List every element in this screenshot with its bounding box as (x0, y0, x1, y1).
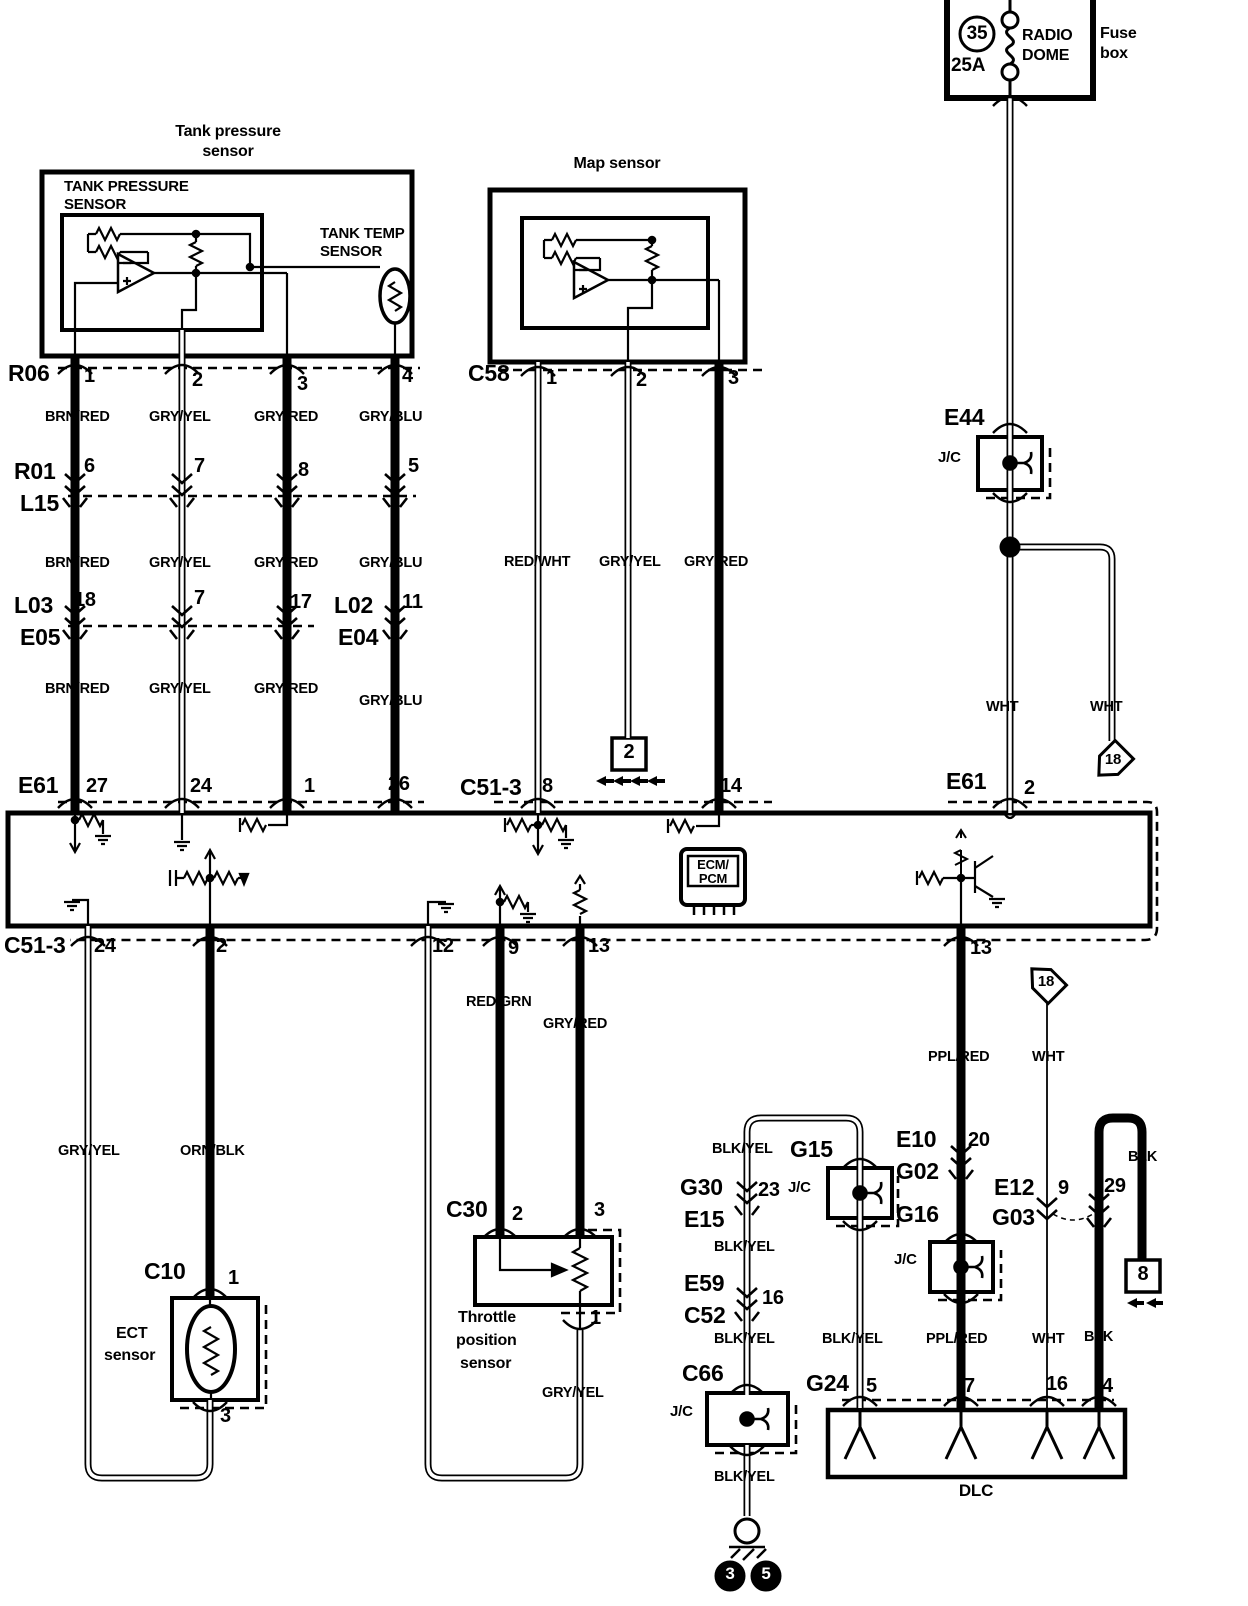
wire-ornblk: ORN/BLK (180, 1144, 245, 1159)
c51-3-pin-8: 8 (542, 776, 553, 796)
conn-c51-3-top: C51-3 (460, 776, 522, 799)
c51-3b-pin-2: 2 (216, 936, 227, 956)
conn-e12: E12 (994, 1176, 1034, 1199)
ground-ref-5: 5 (761, 1565, 770, 1582)
wire-gryred-3: GRY/RED (254, 682, 318, 697)
wire-blkyel-d: BLK/YEL (714, 1470, 775, 1485)
wire-pplred-2: PPL/RED (926, 1332, 987, 1347)
wire-pplred-1: PPL/RED (928, 1050, 989, 1065)
c51-3b-pin-13-right: 13 (970, 938, 992, 958)
ecm-label-line1: ECM/ (697, 858, 729, 871)
ect-label-line2: sensor (104, 1348, 155, 1364)
wire-gryyel-1: GRY/YEL (149, 410, 211, 425)
ect-zigzag (204, 1298, 218, 1400)
ecm-pcm-box (8, 813, 1150, 926)
tank-title-line1: Tank pressure (175, 124, 281, 140)
e44-jc-label: J/C (938, 450, 961, 465)
wiring-diagram: 3525ARADIODOMEFuseboxTank pressuresensor… (0, 0, 1248, 1606)
l02-pin-11: 11 (402, 592, 423, 612)
dlc-label: DLC (959, 1482, 993, 1499)
c30-pin-2: 2 (512, 1204, 523, 1224)
offpage-ref-18-a: 18 (1105, 752, 1121, 767)
conn-e05: E05 (20, 626, 60, 649)
fuse-box-caption-line1: Fuse (1100, 26, 1137, 42)
r01-pin-5: 5 (408, 456, 419, 476)
wire-gryblu-2: GRY/BLU (359, 556, 422, 571)
conn-e44: E44 (944, 406, 984, 429)
l03-pin-7: 7 (194, 588, 205, 608)
tank-temp-label-line2: SENSOR (320, 244, 382, 259)
wire-brnred-3: BRN/RED (45, 682, 110, 697)
r01-pin-8: 8 (298, 460, 309, 480)
conn-e61-left: E61 (18, 774, 58, 797)
ecm-internal-top (70, 813, 1016, 854)
dlc-pin-forks (845, 1412, 1114, 1459)
conn-e59: E59 (684, 1272, 724, 1295)
conn-g16: G16 (896, 1203, 939, 1226)
wire-gryblu-1: GRY/BLU (359, 410, 422, 425)
e61-pin-1: 1 (304, 776, 315, 796)
wire-gryyel-2: GRY/YEL (149, 556, 211, 571)
offpage-ref-2: 2 (624, 742, 635, 762)
wire-redgrn: RED/GRN (466, 995, 531, 1010)
wht-splice-dot (1000, 537, 1021, 558)
e61-pin-27: 27 (86, 776, 108, 796)
wire-blk-right: BLK (1128, 1150, 1157, 1165)
conn-g03: G03 (992, 1206, 1035, 1229)
e61-pin-26: 26 (388, 774, 410, 794)
r01-pin-6: 6 (84, 456, 95, 476)
ect-label-line1: ECT (116, 1326, 147, 1342)
conn-l15: L15 (20, 492, 59, 515)
tps-label-line1: Throttle (458, 1310, 516, 1326)
c10-pin-1: 1 (228, 1268, 239, 1288)
c58-pin-2: 2 (636, 370, 647, 390)
g15-jc-label: J/C (788, 1180, 811, 1195)
e12-pin-9: 9 (1058, 1178, 1069, 1198)
wire-wht-left: WHT (986, 700, 1018, 715)
tank-title-line2: sensor (202, 144, 253, 160)
l03-pin-18: 18 (74, 590, 96, 610)
wire-wht-right: WHT (1090, 700, 1122, 715)
wire-gryyel-map: GRY/YEL (599, 555, 661, 570)
dlc-box (828, 1410, 1125, 1477)
wire-blkyel-g24: BLK/YEL (822, 1332, 883, 1347)
c10-pin-3: 3 (220, 1406, 231, 1426)
map-title: Map sensor (574, 156, 661, 172)
ecm-label-line2: PCM (699, 872, 727, 885)
c30-pin-3: 3 (594, 1200, 605, 1220)
c51-3-pin-14: 14 (720, 776, 742, 796)
conn-l03: L03 (14, 594, 53, 617)
e61-pin-24: 24 (190, 776, 212, 796)
tps-label-line3: sensor (460, 1356, 511, 1372)
ground-ref-3: 3 (725, 1565, 734, 1582)
c51-3b-pin-12: 12 (432, 936, 454, 956)
fuse-name-line1: RADIO (1022, 28, 1073, 44)
wire-wht-dlc-2: WHT (1032, 1332, 1064, 1347)
c66-jc-label: J/C (670, 1404, 693, 1419)
fuse-rating: 25A (951, 56, 985, 75)
g24-pin-16: 16 (1046, 1374, 1068, 1394)
wire-brnred-1: BRN/RED (45, 410, 110, 425)
e10-pin-20: 20 (968, 1130, 990, 1150)
r06-pin-4: 4 (402, 366, 413, 386)
wire-gry-yel-ect-loop-outer (88, 926, 210, 1478)
conn-c52: C52 (684, 1304, 726, 1327)
map-sensor-inner-box (522, 218, 708, 328)
tank-temp-label-line1: TANK TEMP (320, 226, 405, 241)
c58-pin-3: 3 (728, 368, 739, 388)
ect-dashed-offset (180, 1300, 266, 1408)
conn-r01: R01 (14, 460, 56, 483)
fuse-name-line2: DOME (1022, 48, 1069, 64)
g24-pin-7: 7 (964, 1376, 975, 1396)
tank-inner-label-line1: TANK PRESSURE (64, 179, 189, 194)
wire-gryblu-3: GRY/BLU (359, 694, 422, 709)
offpage-ref-8: 8 (1138, 1264, 1149, 1284)
c51-3b-pin-13: 13 (588, 936, 610, 956)
c66-jc-icon (741, 1408, 769, 1430)
conn-g02: G02 (896, 1160, 939, 1183)
wire-blkyel-a: BLK/YEL (712, 1142, 773, 1157)
e12-pin-29: 29 (1104, 1176, 1126, 1196)
conn-e04: E04 (338, 626, 378, 649)
r06-pin-1: 1 (84, 366, 95, 386)
l03-pin-17: 17 (290, 592, 312, 612)
wire-wht-dlc-1: WHT (1032, 1050, 1064, 1065)
r01-pin-7: 7 (194, 456, 205, 476)
wire-gryred-tps: GRY/RED (543, 1017, 607, 1032)
conn-c30: C30 (446, 1198, 488, 1221)
fuse-box-caption-line2: box (1100, 46, 1128, 62)
offpage-ref-18-b: 18 (1038, 974, 1054, 989)
tank-inner-label-line2: SENSOR (64, 197, 126, 212)
conn-e15: E15 (684, 1208, 724, 1231)
wire-brnred-2: BRN/RED (45, 556, 110, 571)
ect-sensor-box (172, 1298, 258, 1400)
fuse-number: 35 (967, 24, 988, 43)
conn-c51-3-bottom: C51-3 (4, 934, 66, 957)
g16-jc-label: J/C (894, 1252, 917, 1267)
c30-pin-1: 1 (590, 1308, 601, 1328)
c51-3b-pin-9: 9 (508, 938, 519, 958)
fuse-icon (1002, 0, 1018, 98)
r06-pin-2: 2 (192, 370, 203, 390)
conn-g24: G24 (806, 1372, 849, 1395)
conn-e61-right: E61 (946, 770, 986, 793)
wire-blk-left: BLK (1084, 1330, 1113, 1345)
e61-pin-2: 2 (1024, 778, 1035, 798)
wire-blkyel-c: BLK/YEL (714, 1332, 775, 1347)
conn-c66: C66 (682, 1362, 724, 1385)
tps-label-line2: position (456, 1333, 517, 1349)
ect-thermistor-icon (187, 1306, 235, 1392)
chassis-ground-icon (729, 1519, 766, 1560)
diagram-canvas (0, 0, 1248, 1606)
wire-gryred-2: GRY/RED (254, 556, 318, 571)
e61-right-wrap-dashed (70, 802, 1157, 940)
wire-gryred-1: GRY/RED (254, 410, 318, 425)
g30-pin-23: 23 (758, 1180, 780, 1200)
inline-connector-chevrons (63, 474, 1111, 1321)
c51-3b-pin-24: 24 (94, 936, 116, 956)
conn-c58: C58 (468, 362, 510, 385)
wire-gryyel-ect: GRY/YEL (58, 1144, 120, 1159)
r06-pin-3: 3 (297, 374, 308, 394)
conn-l02: L02 (334, 594, 373, 617)
conn-g30: G30 (680, 1176, 723, 1199)
wire-gryyel-3: GRY/YEL (149, 682, 211, 697)
conn-g15: G15 (790, 1138, 833, 1161)
map-opamp-circuit (544, 234, 719, 362)
wire-gryyel-tps: GRY/YEL (542, 1386, 604, 1401)
conn-r06: R06 (8, 362, 50, 385)
g24-pin-4: 4 (1102, 1376, 1113, 1396)
conn-c10: C10 (144, 1260, 186, 1283)
wire-gryred-map: GRY/RED (684, 555, 748, 570)
conn-e10: E10 (896, 1128, 936, 1151)
e59-pin-16: 16 (762, 1288, 784, 1308)
c58-pin-1: 1 (546, 368, 557, 388)
g24-pin-5: 5 (866, 1376, 877, 1396)
wire-blkyel-b: BLK/YEL (714, 1240, 775, 1255)
wire-redwht: RED/WHT (504, 555, 570, 570)
